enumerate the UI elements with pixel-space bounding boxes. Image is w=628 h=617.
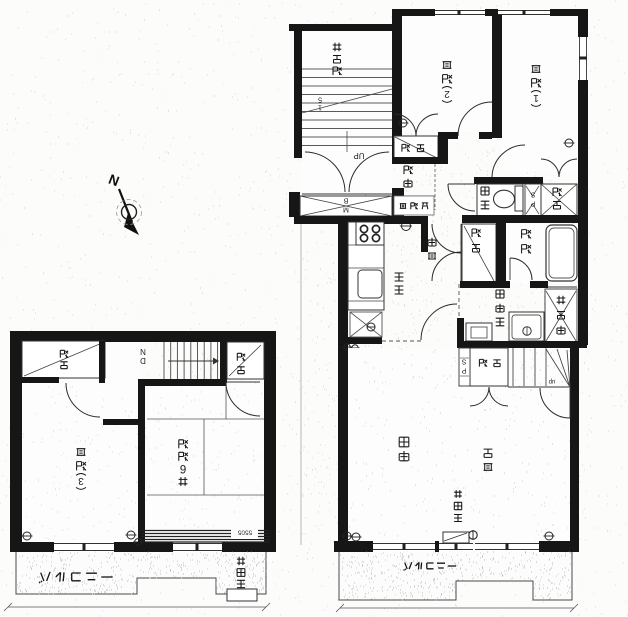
svg-text:up: up bbox=[548, 378, 555, 384]
svg-text:1: 1 bbox=[533, 92, 539, 103]
svg-text:UP: UP bbox=[353, 151, 364, 160]
svg-text:3: 3 bbox=[78, 475, 84, 486]
svg-text:M: M bbox=[343, 206, 349, 213]
svg-text:P: P bbox=[461, 367, 466, 374]
svg-text:6: 6 bbox=[180, 462, 186, 474]
svg-text:S: S bbox=[461, 358, 466, 365]
svg-text:D: D bbox=[140, 356, 146, 365]
svg-text:5: 5 bbox=[318, 96, 322, 103]
svg-text:5505: 5505 bbox=[237, 529, 252, 536]
svg-text:N: N bbox=[140, 347, 146, 356]
svg-text:S: S bbox=[530, 191, 535, 198]
svg-text:B: B bbox=[343, 197, 348, 204]
svg-text:2: 2 bbox=[444, 88, 450, 99]
svg-text:1: 1 bbox=[318, 104, 322, 111]
svg-text:P: P bbox=[530, 200, 535, 207]
